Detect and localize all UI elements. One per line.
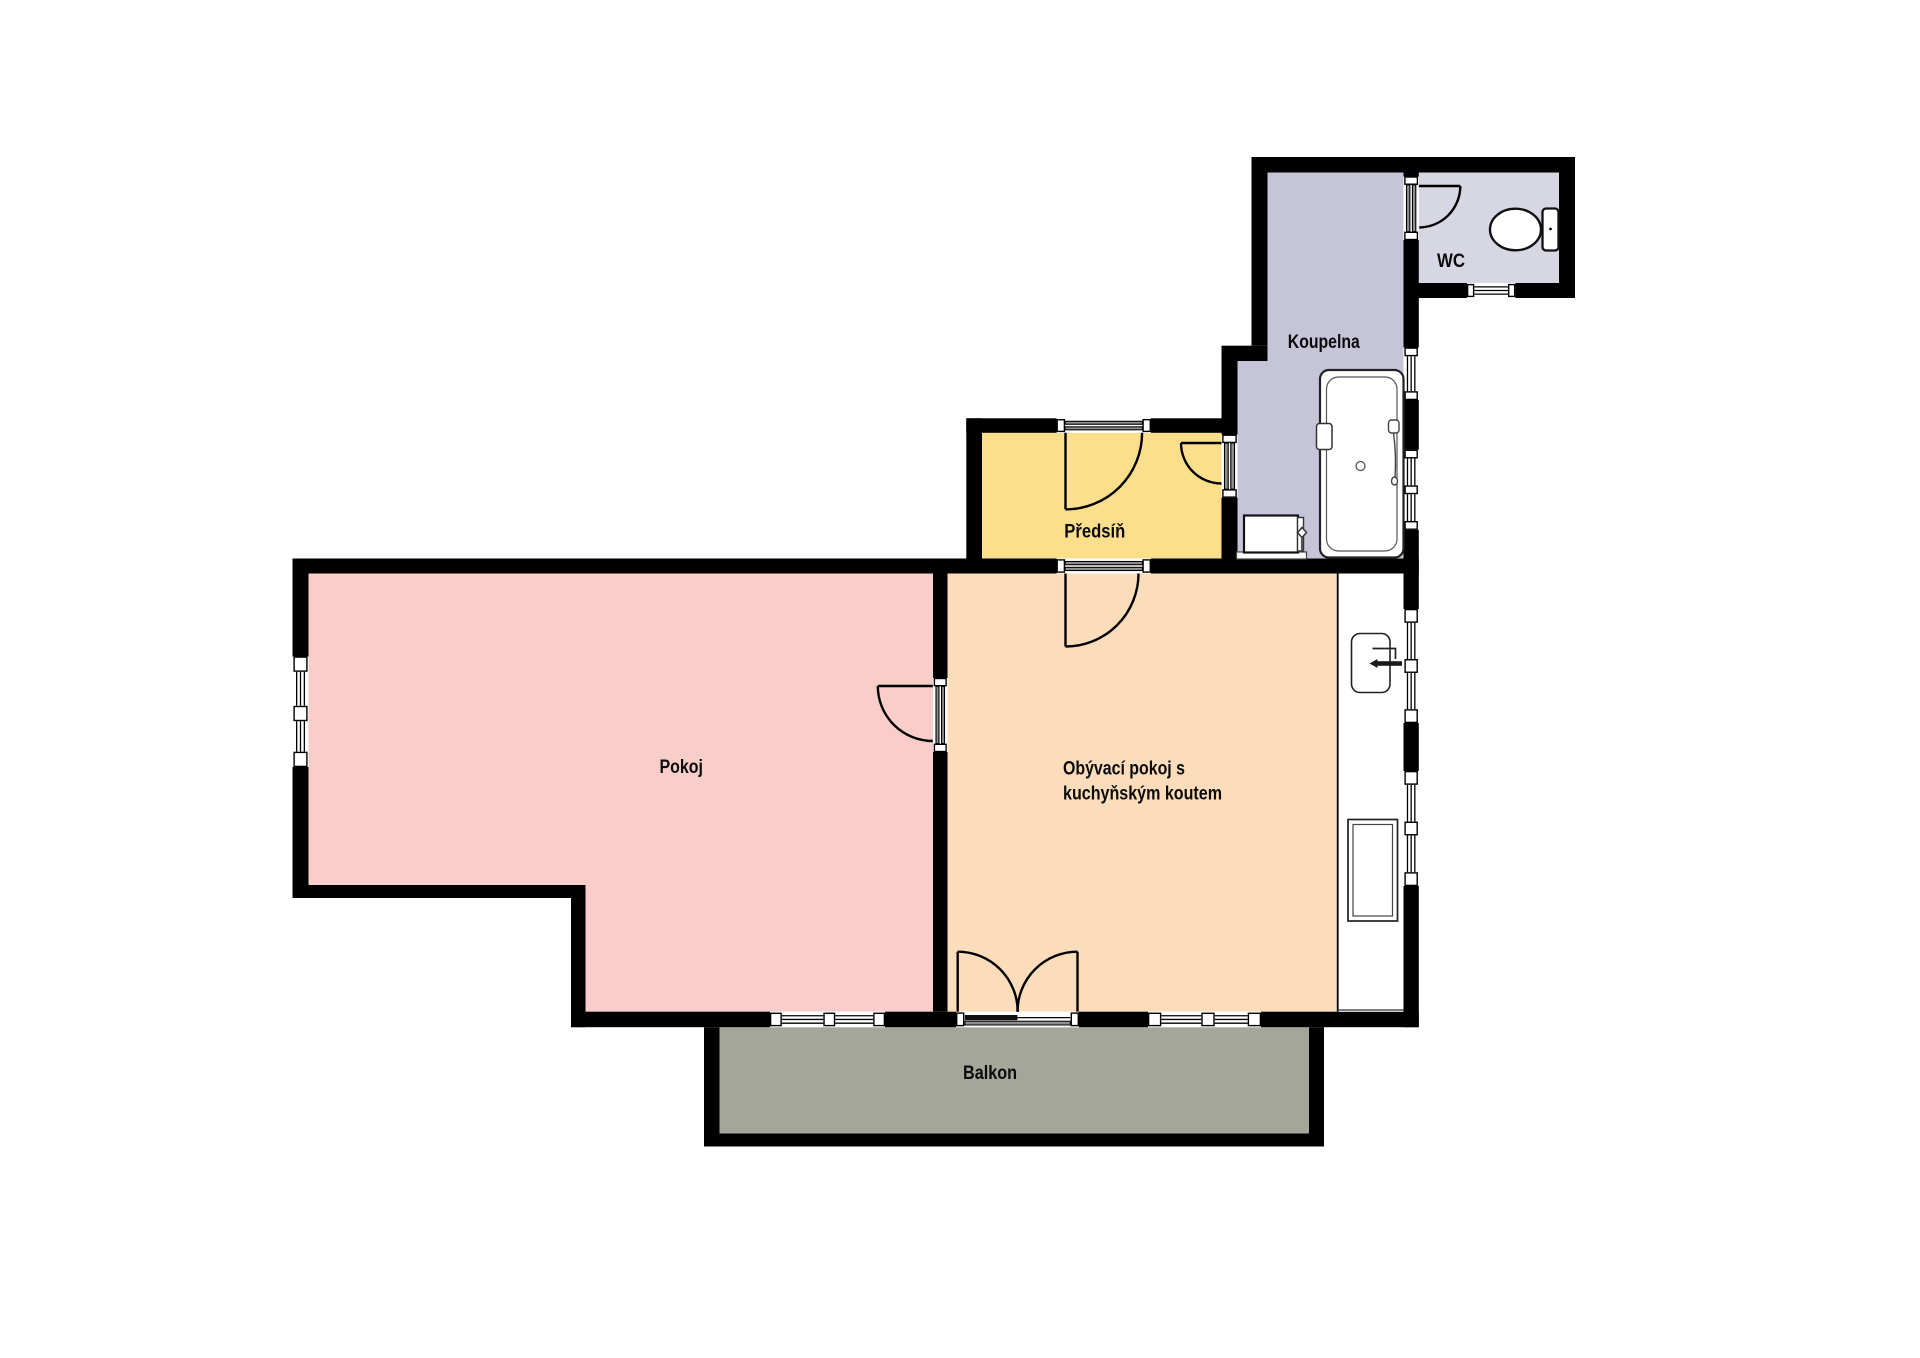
svg-text:Pokoj: Pokoj: [660, 757, 704, 778]
svg-text:kuchyňským koutem: kuchyňským koutem: [1063, 784, 1222, 805]
svg-text:Obývací pokoj s: Obývací pokoj s: [1063, 759, 1185, 780]
svg-text:WC: WC: [1437, 251, 1465, 272]
svg-text:Předsíň: Předsíň: [1064, 522, 1125, 543]
svg-text:Balkon: Balkon: [963, 1063, 1017, 1084]
svg-text:Koupelna: Koupelna: [1288, 332, 1360, 353]
